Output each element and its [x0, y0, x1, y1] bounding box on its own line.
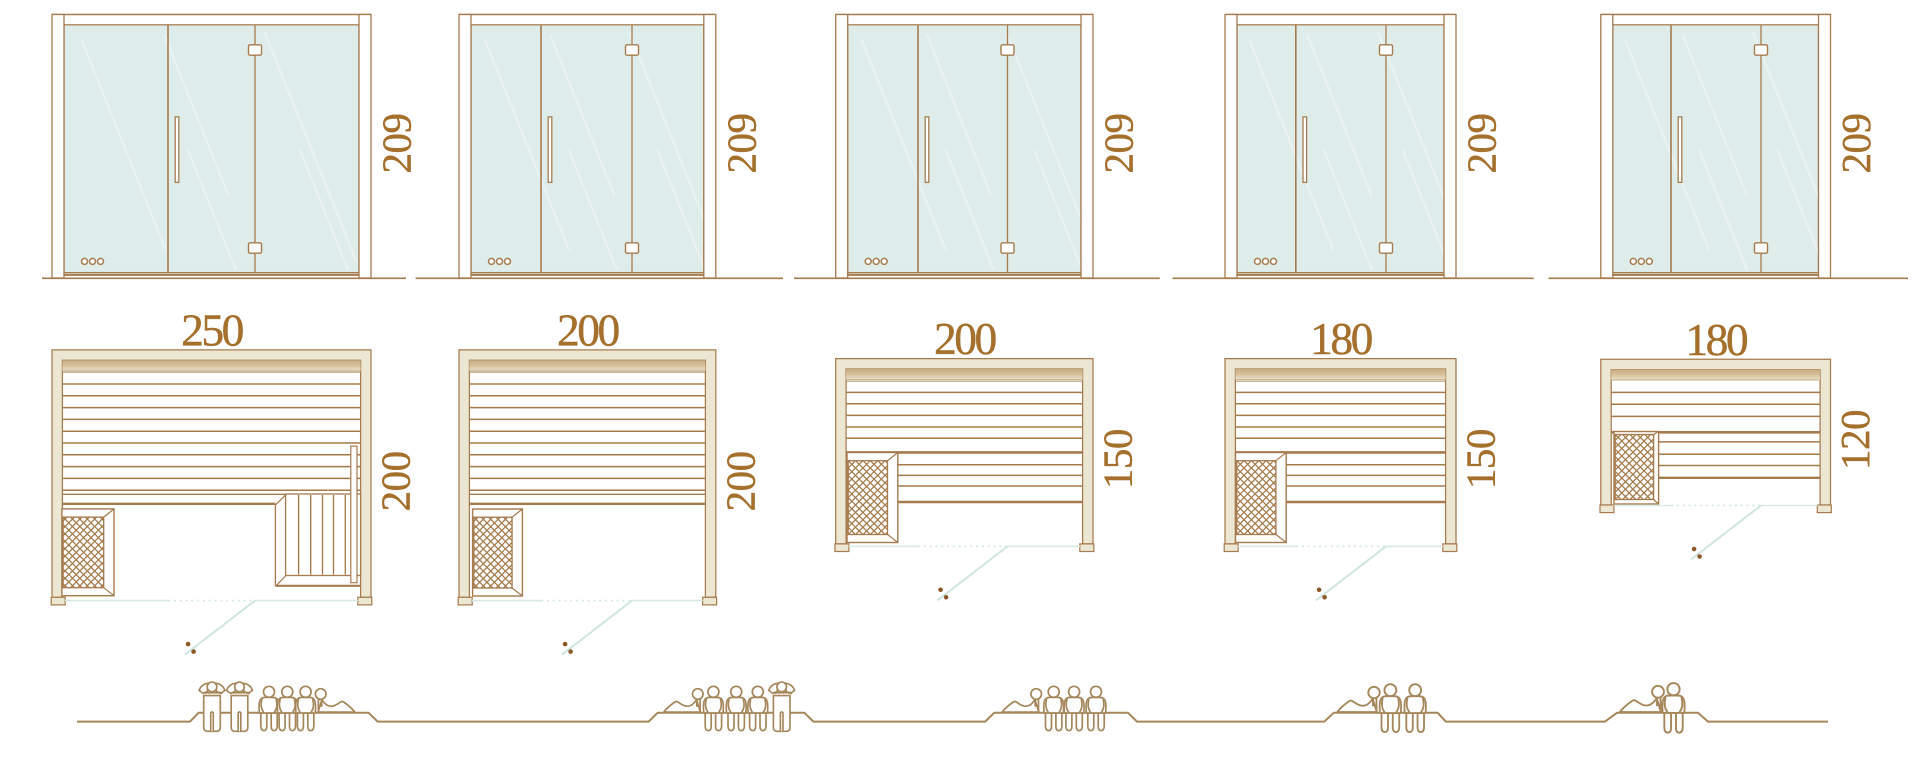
svg-text:180: 180 [1310, 313, 1373, 364]
svg-text:209: 209 [1096, 114, 1142, 174]
svg-text:209: 209 [1459, 114, 1505, 174]
svg-text:250: 250 [181, 305, 244, 356]
svg-text:209: 209 [1833, 114, 1879, 174]
svg-text:209: 209 [718, 114, 764, 174]
svg-text:180: 180 [1685, 314, 1748, 365]
svg-text:200: 200 [934, 313, 997, 364]
svg-text:209: 209 [374, 114, 420, 174]
svg-text:120: 120 [1832, 410, 1878, 470]
svg-text:200: 200 [717, 451, 763, 511]
svg-text:200: 200 [557, 305, 620, 356]
svg-text:200: 200 [373, 451, 419, 511]
svg-text:150: 150 [1458, 429, 1504, 489]
svg-text:150: 150 [1095, 429, 1141, 489]
